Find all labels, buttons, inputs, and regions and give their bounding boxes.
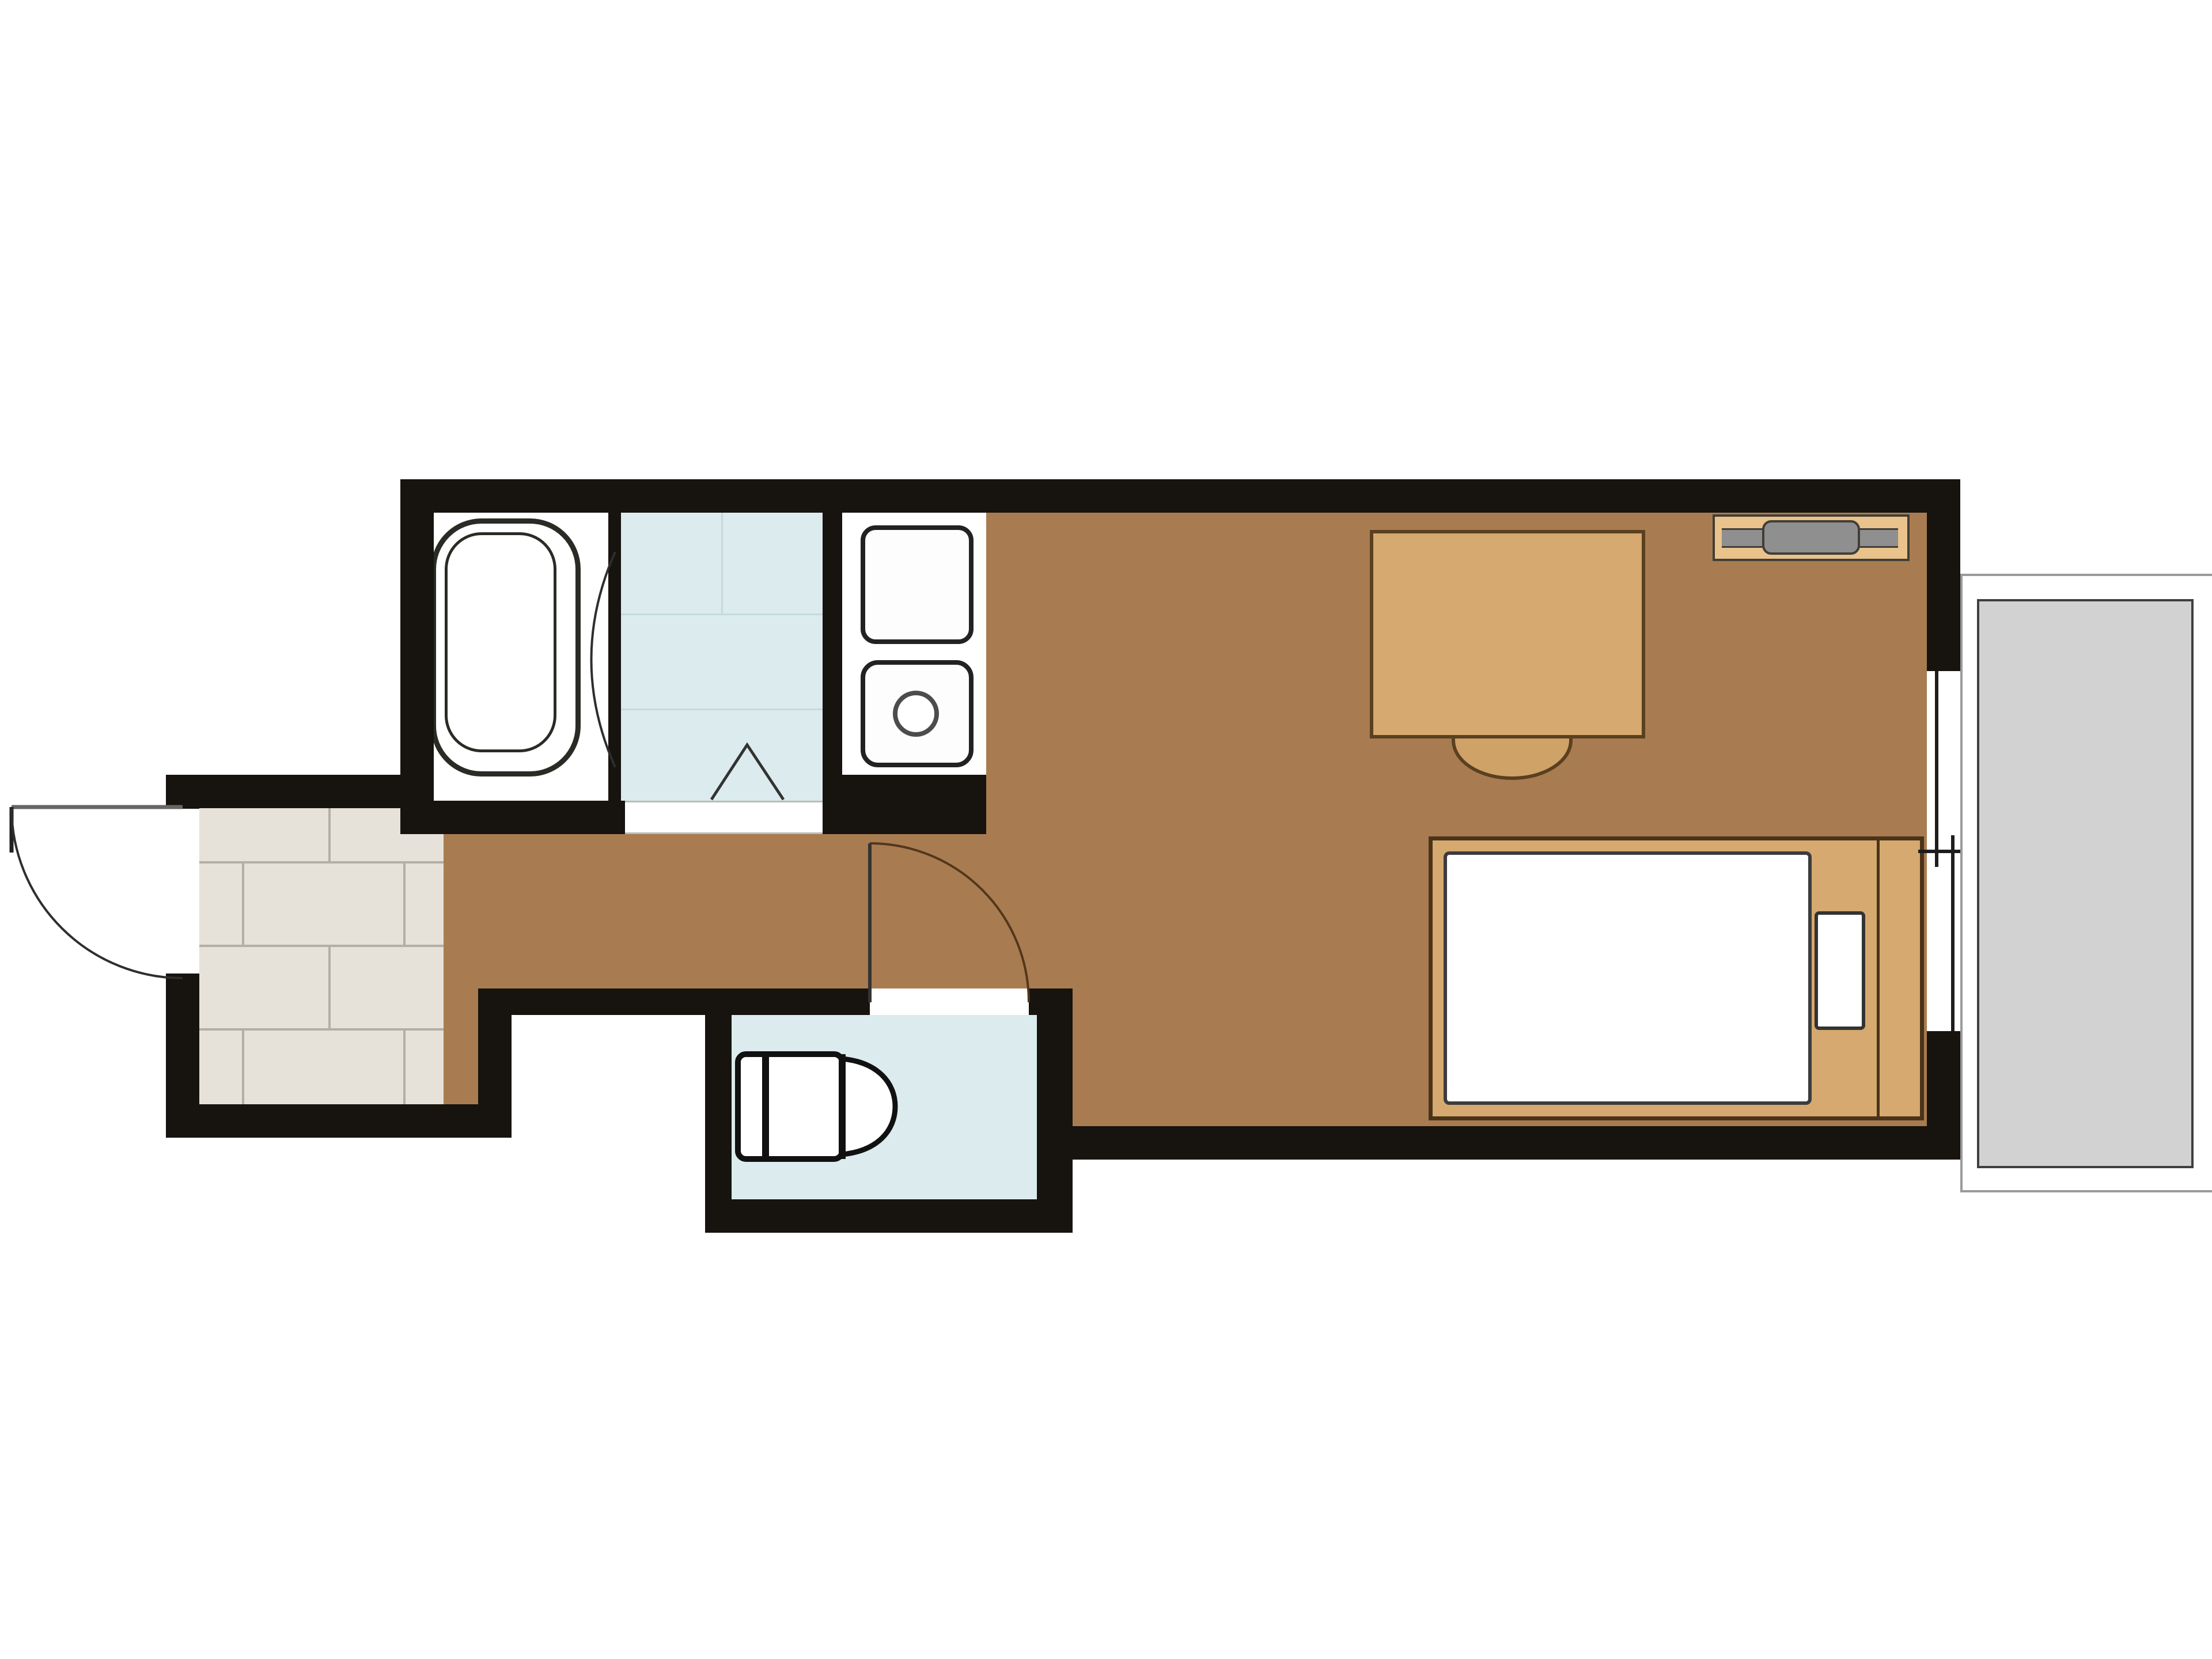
bathroom-door-arc [592, 552, 616, 767]
toilet-door-swing-arc [870, 843, 1029, 1002]
floor-plan [0, 0, 2212, 1659]
annotation-overlay [0, 0, 2212, 1659]
toilet-tank [738, 1054, 842, 1159]
washroom-folding-door-mark [711, 745, 783, 800]
toilet-bowl [842, 1059, 895, 1154]
entrance-door-swing-arc [12, 809, 183, 978]
